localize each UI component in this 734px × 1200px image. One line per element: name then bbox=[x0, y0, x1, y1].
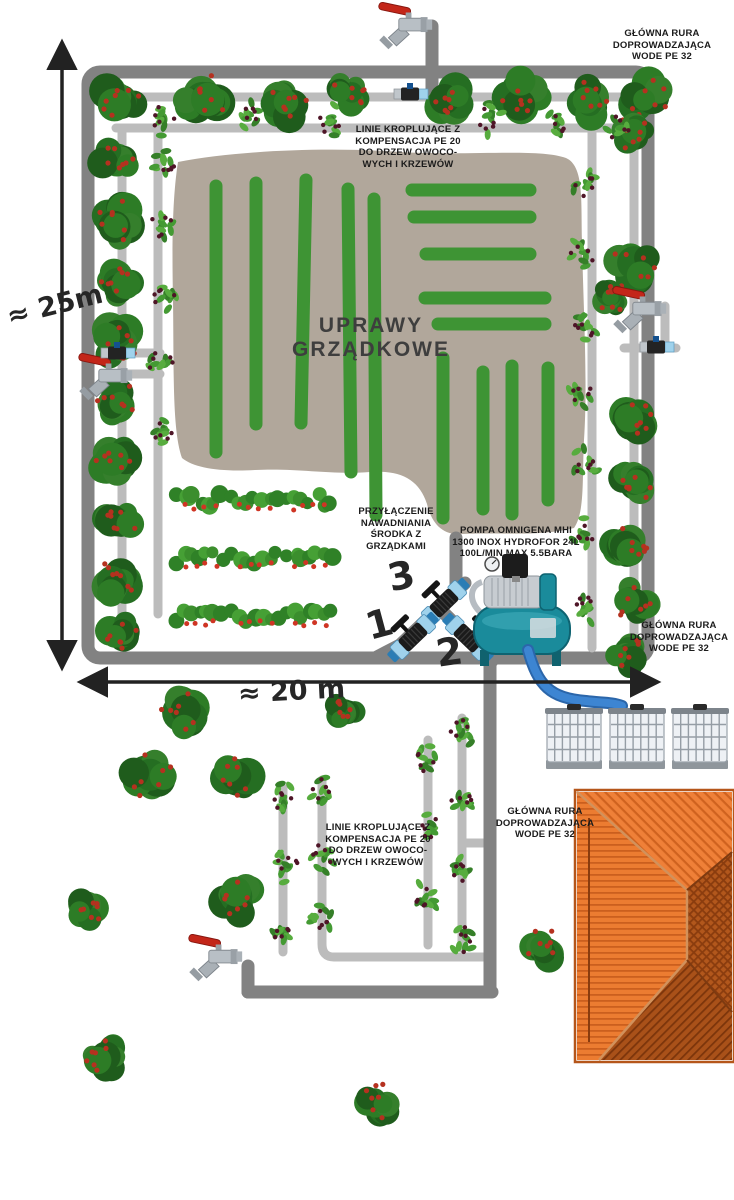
garden-tap bbox=[378, 2, 432, 50]
water-tank bbox=[608, 704, 666, 769]
strawberry-plant bbox=[280, 546, 342, 570]
fruit-tree bbox=[83, 1034, 125, 1081]
fruit-tree bbox=[89, 73, 147, 121]
label-main-pipe-bottom: GŁÓWNA RURA DOPROWADZAJĄCA WODE PE 32 bbox=[490, 806, 600, 841]
fruit-tree bbox=[119, 750, 177, 800]
berry-bush bbox=[268, 924, 294, 946]
water-tank bbox=[671, 704, 729, 769]
fruit-tree bbox=[97, 259, 144, 307]
fruit-tree bbox=[210, 755, 266, 798]
berry-bush bbox=[149, 415, 174, 446]
fruit-tree bbox=[68, 888, 109, 931]
inline-valve bbox=[394, 83, 428, 101]
label-vegetable-beds: UPRAWY GRZĄDKOWE bbox=[271, 314, 471, 362]
garden-tap bbox=[188, 934, 242, 982]
fruit-tree bbox=[608, 462, 654, 504]
bed-drip-line bbox=[301, 180, 306, 423]
irrigation-plan: GŁÓWNA RURA DOPROWADZAJĄCA WODE PE 32 LI… bbox=[0, 0, 734, 1200]
label-bed-connection: PRZYŁĄCZENIE NAWADNIANIA ŚRODKA Z GRZĄDK… bbox=[346, 506, 446, 552]
label-main-pipe-right: GŁÓWNA RURA DOPROWADZAJĄCA WODE PE 32 bbox=[624, 620, 734, 655]
berry-bush bbox=[415, 743, 440, 774]
label-main-pipe-top: GŁÓWNA RURA DOPROWADZAJĄCA WODE PE 32 bbox=[606, 28, 718, 63]
diagram-canvas bbox=[0, 0, 734, 1200]
fruit-tree bbox=[173, 73, 235, 123]
fruit-tree bbox=[159, 686, 210, 740]
label-pump: POMPA OMNIGENA MHI 1300 INOX HYDROFOR 24… bbox=[452, 525, 580, 560]
label-drip-lines-top: LINIE KROPLUJĄCE Z KOMPENSACJA PE 20 DO … bbox=[347, 124, 469, 170]
fruit-tree bbox=[208, 874, 264, 928]
dimension-width-label: ≈ 20 m bbox=[237, 673, 346, 710]
fruit-tree bbox=[92, 503, 144, 538]
berry-bush bbox=[306, 774, 334, 807]
fruit-tree bbox=[88, 437, 142, 486]
strawberry-plant bbox=[224, 546, 281, 572]
berry-bush bbox=[273, 780, 296, 815]
strawberry-plant bbox=[169, 485, 229, 515]
fruit-tree bbox=[95, 612, 140, 652]
fruit-tree bbox=[92, 192, 145, 250]
label-drip-lines-bottom: LINIE KROPLUJĄCE Z KOMPENSACJA PE 20 DO … bbox=[317, 822, 439, 868]
strawberry-plant bbox=[224, 604, 286, 629]
fruit-tree bbox=[87, 138, 139, 179]
fruit-tree bbox=[519, 929, 564, 973]
strawberry-plant bbox=[280, 487, 337, 513]
fruit-tree bbox=[92, 558, 143, 607]
strawberry-plant bbox=[169, 546, 231, 571]
water-tank bbox=[545, 704, 603, 769]
strawberry-plant bbox=[225, 490, 286, 512]
strawberry-plant bbox=[280, 603, 338, 629]
fruit-tree bbox=[354, 1082, 400, 1127]
strawberry-plant bbox=[169, 604, 230, 629]
fruit-tree bbox=[567, 74, 609, 131]
fruit-tree bbox=[327, 73, 370, 117]
pump bbox=[472, 554, 570, 666]
